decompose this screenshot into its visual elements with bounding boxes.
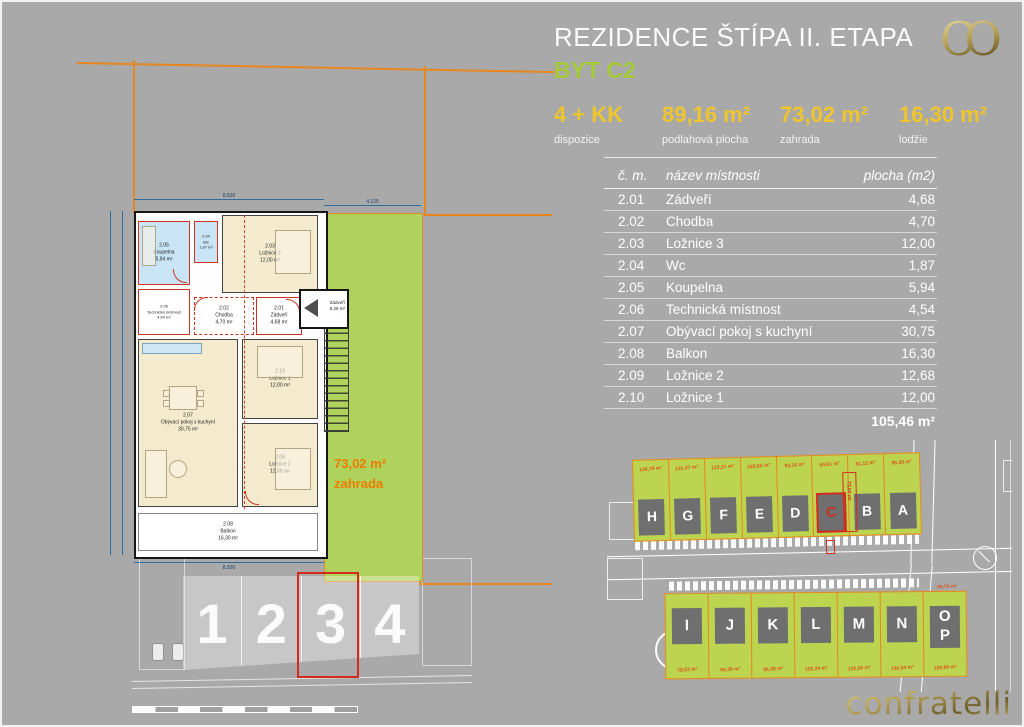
parking-spot-number: 4 <box>361 576 419 670</box>
building-block: H <box>638 499 665 536</box>
plot-area-label: 136,79 m² <box>633 465 668 474</box>
room-area: 4,68 <box>857 192 937 207</box>
plot-area-label: 165,65 m² <box>741 462 776 471</box>
stat-item: 89,16 m² podlahová plocha <box>662 102 750 146</box>
building-letter: P <box>940 627 950 646</box>
building-block: A <box>889 492 916 529</box>
divider-line <box>604 157 937 158</box>
room-number: 2.09 <box>604 368 666 383</box>
wall-axis-line <box>244 215 245 509</box>
room-label: 2.04 Wc 1,87 m² <box>195 234 217 251</box>
building-block: G <box>674 498 701 535</box>
site-plot: L 138,34 m² <box>795 593 839 677</box>
site-plot: 123,21 m² F <box>705 458 743 539</box>
floorplan-building: 2.05 Koupelna 5,94 m² 2.04 Wc 1,87 m² 2.… <box>134 211 328 559</box>
unit-subtitle: BYT C2 <box>554 57 636 84</box>
building-block: B <box>854 493 881 530</box>
table-row: 2.10 Ložnice 1 12,00 <box>604 387 937 409</box>
unit-c-garden-strip: 73,02 m² <box>842 472 858 532</box>
site-plot: N 136,04 m² <box>881 592 925 676</box>
building-letter: J <box>726 616 735 635</box>
building-block: N <box>887 606 917 642</box>
table-body: 2.01 Zádveří 4,68 2.02 Chodba 4,70 2.03 … <box>604 189 937 409</box>
table-total: 105,46 m² <box>604 409 937 433</box>
room-number: 2.07 <box>604 324 666 339</box>
parcel-outline <box>1003 460 1012 492</box>
site-plot: 165,65 m² E <box>741 457 779 538</box>
stat-value: 16,30 m² <box>899 102 987 128</box>
room-area: 30,75 <box>857 324 937 339</box>
table-header-row: č. m. název místnosti plocha (m2) <box>604 164 937 189</box>
room-number: 2.10 <box>604 390 666 405</box>
room-loznice2: 2.09 Ložnice 2 12,68 m² <box>242 423 318 507</box>
room-area: 4,70 <box>857 214 937 229</box>
co-logo: CO <box>940 12 1020 66</box>
stat-label: dispozice <box>554 134 623 146</box>
plot-area-label: 86,38 m² <box>752 665 794 674</box>
room-name: Balkon <box>666 346 857 361</box>
highlighted-parking-spot <box>297 572 359 678</box>
room-name: Ložnice 1 <box>666 390 857 405</box>
car-icon <box>152 643 164 661</box>
plot-area-label: 123,21 m² <box>705 463 740 472</box>
room-number: 2.03 <box>604 236 666 251</box>
unit-c-garden-area-label: 73,02 m² <box>845 481 852 501</box>
row-houses-strip <box>669 578 919 590</box>
room-area: 4,54 <box>857 302 937 317</box>
dimension-label: 8.500 <box>134 193 324 199</box>
dimension-label: 4.125 <box>324 199 421 205</box>
header-room-name: název místnosti <box>666 168 857 183</box>
building-block: F <box>710 497 737 534</box>
stat-item: 73,02 m² zahrada <box>780 102 868 146</box>
building-letter: E <box>755 506 765 524</box>
table-row: 2.02 Chodba 4,70 <box>604 211 937 233</box>
garden-area-label: 73,02 m² zahrada <box>334 454 386 493</box>
plot-area-label: 81,12 m² <box>848 459 883 468</box>
building-letter: N <box>896 615 907 634</box>
site-plot: 136,79 m² H <box>633 460 671 541</box>
dimension-line: 8.500 <box>134 199 324 200</box>
door-arc <box>286 299 300 313</box>
stat-value: 4 + KK <box>554 102 623 128</box>
unit-stats: 4 + KK dispozice 89,16 m² podlahová ploc… <box>554 102 1004 150</box>
building-block: L <box>801 607 831 643</box>
stat-item: 4 + KK dispozice <box>554 102 623 146</box>
entrance-vestibule: Zádveří 5,29 m² <box>299 289 349 329</box>
furniture-chair <box>197 390 204 397</box>
door-arc <box>194 297 208 311</box>
furniture-chair <box>197 400 204 407</box>
car-icon <box>172 643 184 661</box>
road <box>607 548 1012 581</box>
stat-item: 16,30 m² lodžie <box>899 102 987 146</box>
parcel-outline <box>607 558 643 600</box>
room-name: Koupelna <box>666 280 857 295</box>
room-name: Technická místnost <box>666 302 857 317</box>
dimension-line <box>122 211 123 555</box>
building-block: E <box>746 496 773 533</box>
room-technicka-mistnost: 2.06 Technická místnost 4,54 m² <box>138 289 190 335</box>
plot-boundary-line <box>424 66 426 215</box>
building-letter: C <box>826 504 837 522</box>
furniture-bed <box>275 448 311 490</box>
plot-area-label: 94,36 m² <box>709 665 751 674</box>
plot-boundary-line <box>133 60 135 213</box>
table-row: 2.09 Ložnice 2 12,68 <box>604 365 937 387</box>
parking-spot-number: 1 <box>183 576 242 670</box>
page-title: REZIDENCE ŠTÍPA II. ETAPA <box>554 22 913 53</box>
table-row: 2.08 Balkon 16,30 <box>604 343 937 365</box>
furniture-bathtub <box>142 226 156 266</box>
room-area: 5,94 <box>857 280 937 295</box>
door-arc <box>245 491 259 505</box>
dimension-line <box>110 211 111 555</box>
site-plot: M 133,06 m² <box>838 592 882 676</box>
plot-area-label: 136,04 m² <box>881 664 923 673</box>
unit-c-parking-marker <box>826 540 835 554</box>
plot-area-label: 133,06 m² <box>838 664 880 673</box>
building-block: D <box>782 495 809 532</box>
brochure-page: 8.500 8.500 4.125 73,02 m² zahrada 2.05 … <box>0 0 1024 727</box>
furniture-bed <box>257 346 303 378</box>
room-wc: 2.04 Wc 1,87 m² <box>194 221 218 263</box>
furniture-armchair <box>169 460 187 478</box>
north-compass-icon <box>973 546 997 570</box>
room-label: 2.06 Technická místnost 4,54 m² <box>139 304 189 321</box>
parking-spot-number: 2 <box>242 576 301 670</box>
site-plot: K 86,38 m² <box>752 593 796 677</box>
room-number: 2.02 <box>604 214 666 229</box>
plot-area-label: 100,95 m² <box>924 663 966 672</box>
building-letter: M <box>853 615 866 634</box>
room-area: 1,87 <box>857 258 937 273</box>
room-name: Wc <box>666 258 857 273</box>
building-letter: O <box>939 608 951 627</box>
stat-value: 73,02 m² <box>780 102 868 128</box>
table-row: 2.07 Obývací pokoj s kuchyní 30,75 <box>604 321 937 343</box>
building-block: OP <box>930 606 960 648</box>
site-plot: OP 100,95 m² <box>924 592 967 676</box>
building-letter: I <box>685 617 689 636</box>
room-number: 2.08 <box>604 346 666 361</box>
room-number: 2.05 <box>604 280 666 295</box>
stat-label: lodžie <box>899 134 987 146</box>
door-arc <box>173 269 187 283</box>
room-zadveri: 2.01 Zádveří 4,68 m² <box>256 297 302 335</box>
plot-area-label: 79,53 m² <box>666 665 708 674</box>
room-obyvaci-pokoj: 2.07 Obývací pokoj s kuchyní 30,75 m² <box>138 339 238 507</box>
building-letter: B <box>862 503 873 521</box>
furniture-chair <box>163 390 170 397</box>
furniture-sofa <box>145 450 167 498</box>
staircase <box>324 324 349 432</box>
stat-label: podlahová plocha <box>662 134 750 146</box>
stat-value: 89,16 m² <box>662 102 750 128</box>
furniture-bed <box>275 230 311 274</box>
dimension-line: 4.125 <box>324 205 421 206</box>
plot-area-label: 85,36 m² <box>884 458 919 467</box>
site-plan: 136,79 m² H 131,47 m² G 123,21 m² F 165,… <box>607 440 1012 692</box>
table-row: 2.03 Ložnice 3 12,00 <box>604 233 937 255</box>
plot-area-label: 94,61 m² <box>812 460 847 469</box>
site-plot: I 79,53 m² <box>666 594 710 678</box>
room-area: 12,00 <box>857 236 937 251</box>
room-loznice1: 2.10 Ložnice 1 12,00 m² <box>242 339 318 419</box>
building-letter: F <box>719 507 728 525</box>
furniture-chair <box>163 400 170 407</box>
room-number: 2.01 <box>604 192 666 207</box>
table-row: 2.04 Wc 1,87 <box>604 255 937 277</box>
plot-area-label: 95,79 m² <box>937 583 957 590</box>
table-row: 2.06 Technická místnost 4,54 <box>604 299 937 321</box>
plot-boundary-line <box>424 214 552 216</box>
building-letter: D <box>790 505 801 523</box>
building-block: I <box>672 608 702 644</box>
plot-area-label: 93,34 m² <box>776 461 811 470</box>
room-name: Ložnice 2 <box>666 368 857 383</box>
room-name: Zádveří <box>666 192 857 207</box>
building-block: K <box>758 607 788 643</box>
room-label: 2.08 Balkon 16,30 m² <box>139 522 317 543</box>
site-plan-top-row: 136,79 m² H 131,47 m² G 123,21 m² F 165,… <box>632 452 922 542</box>
site-plot: 85,36 m² A <box>884 453 921 534</box>
header-room-area: plocha (m2) <box>857 168 937 183</box>
room-area: 12,68 <box>857 368 937 383</box>
room-name: Chodba <box>666 214 857 229</box>
building-letter: K <box>767 616 778 635</box>
furniture-table <box>169 386 197 410</box>
room-number: 2.04 <box>604 258 666 273</box>
plot-area-label: 138,34 m² <box>795 664 837 673</box>
building-letter: H <box>647 508 658 526</box>
building-block: J <box>715 608 745 644</box>
furniture-kitchen-counter <box>142 343 202 354</box>
room-chodba: 2.02 Chodba 4,70 m² <box>194 297 254 335</box>
plot-area-label: 131,47 m² <box>669 464 704 473</box>
room-table: č. m. název místnosti plocha (m2) 2.01 Z… <box>604 164 937 433</box>
plot-boundary-line <box>77 62 555 73</box>
header-room-number: č. m. <box>604 168 666 183</box>
site-plot: J 94,36 m² <box>709 594 753 678</box>
room-loznice3: 2.03 Ložnice 3 12,00 m² <box>222 215 318 293</box>
stat-label: zahrada <box>780 134 868 146</box>
building-block: C <box>818 494 845 531</box>
room-koupelna: 2.05 Koupelna 5,94 m² <box>138 221 190 285</box>
room-label: 2.07 Obývací pokoj s kuchyní 30,75 m² <box>139 413 237 434</box>
room-label: Zádveří 5,29 m² <box>330 300 345 313</box>
confratelli-logo: confratelli <box>788 686 1012 722</box>
building-letter: A <box>898 502 909 520</box>
room-area: 16,30 <box>857 346 937 361</box>
site-plot: 93,34 m² D <box>776 456 814 537</box>
site-plot: 131,47 m² G <box>669 459 707 540</box>
driveway-outline <box>422 558 472 666</box>
room-balkon: 2.08 Balkon 16,30 m² <box>138 513 318 551</box>
building-block: M <box>844 606 874 642</box>
table-row: 2.05 Koupelna 5,94 <box>604 277 937 299</box>
scale-bar <box>132 706 358 713</box>
building-letter: G <box>682 507 693 525</box>
entrance-arrow-icon <box>304 299 318 317</box>
building-letter: L <box>811 616 820 635</box>
road-edge-line <box>132 682 472 689</box>
room-number: 2.06 <box>604 302 666 317</box>
site-plan-bottom-row: I 79,53 m² J 94,36 m² K 86,38 m² L 138,3… <box>665 591 968 680</box>
table-row: 2.01 Zádveří 4,68 <box>604 189 937 211</box>
room-name: Obývací pokoj s kuchyní <box>666 324 857 339</box>
room-area: 12,00 <box>857 390 937 405</box>
room-name: Ložnice 3 <box>666 236 857 251</box>
